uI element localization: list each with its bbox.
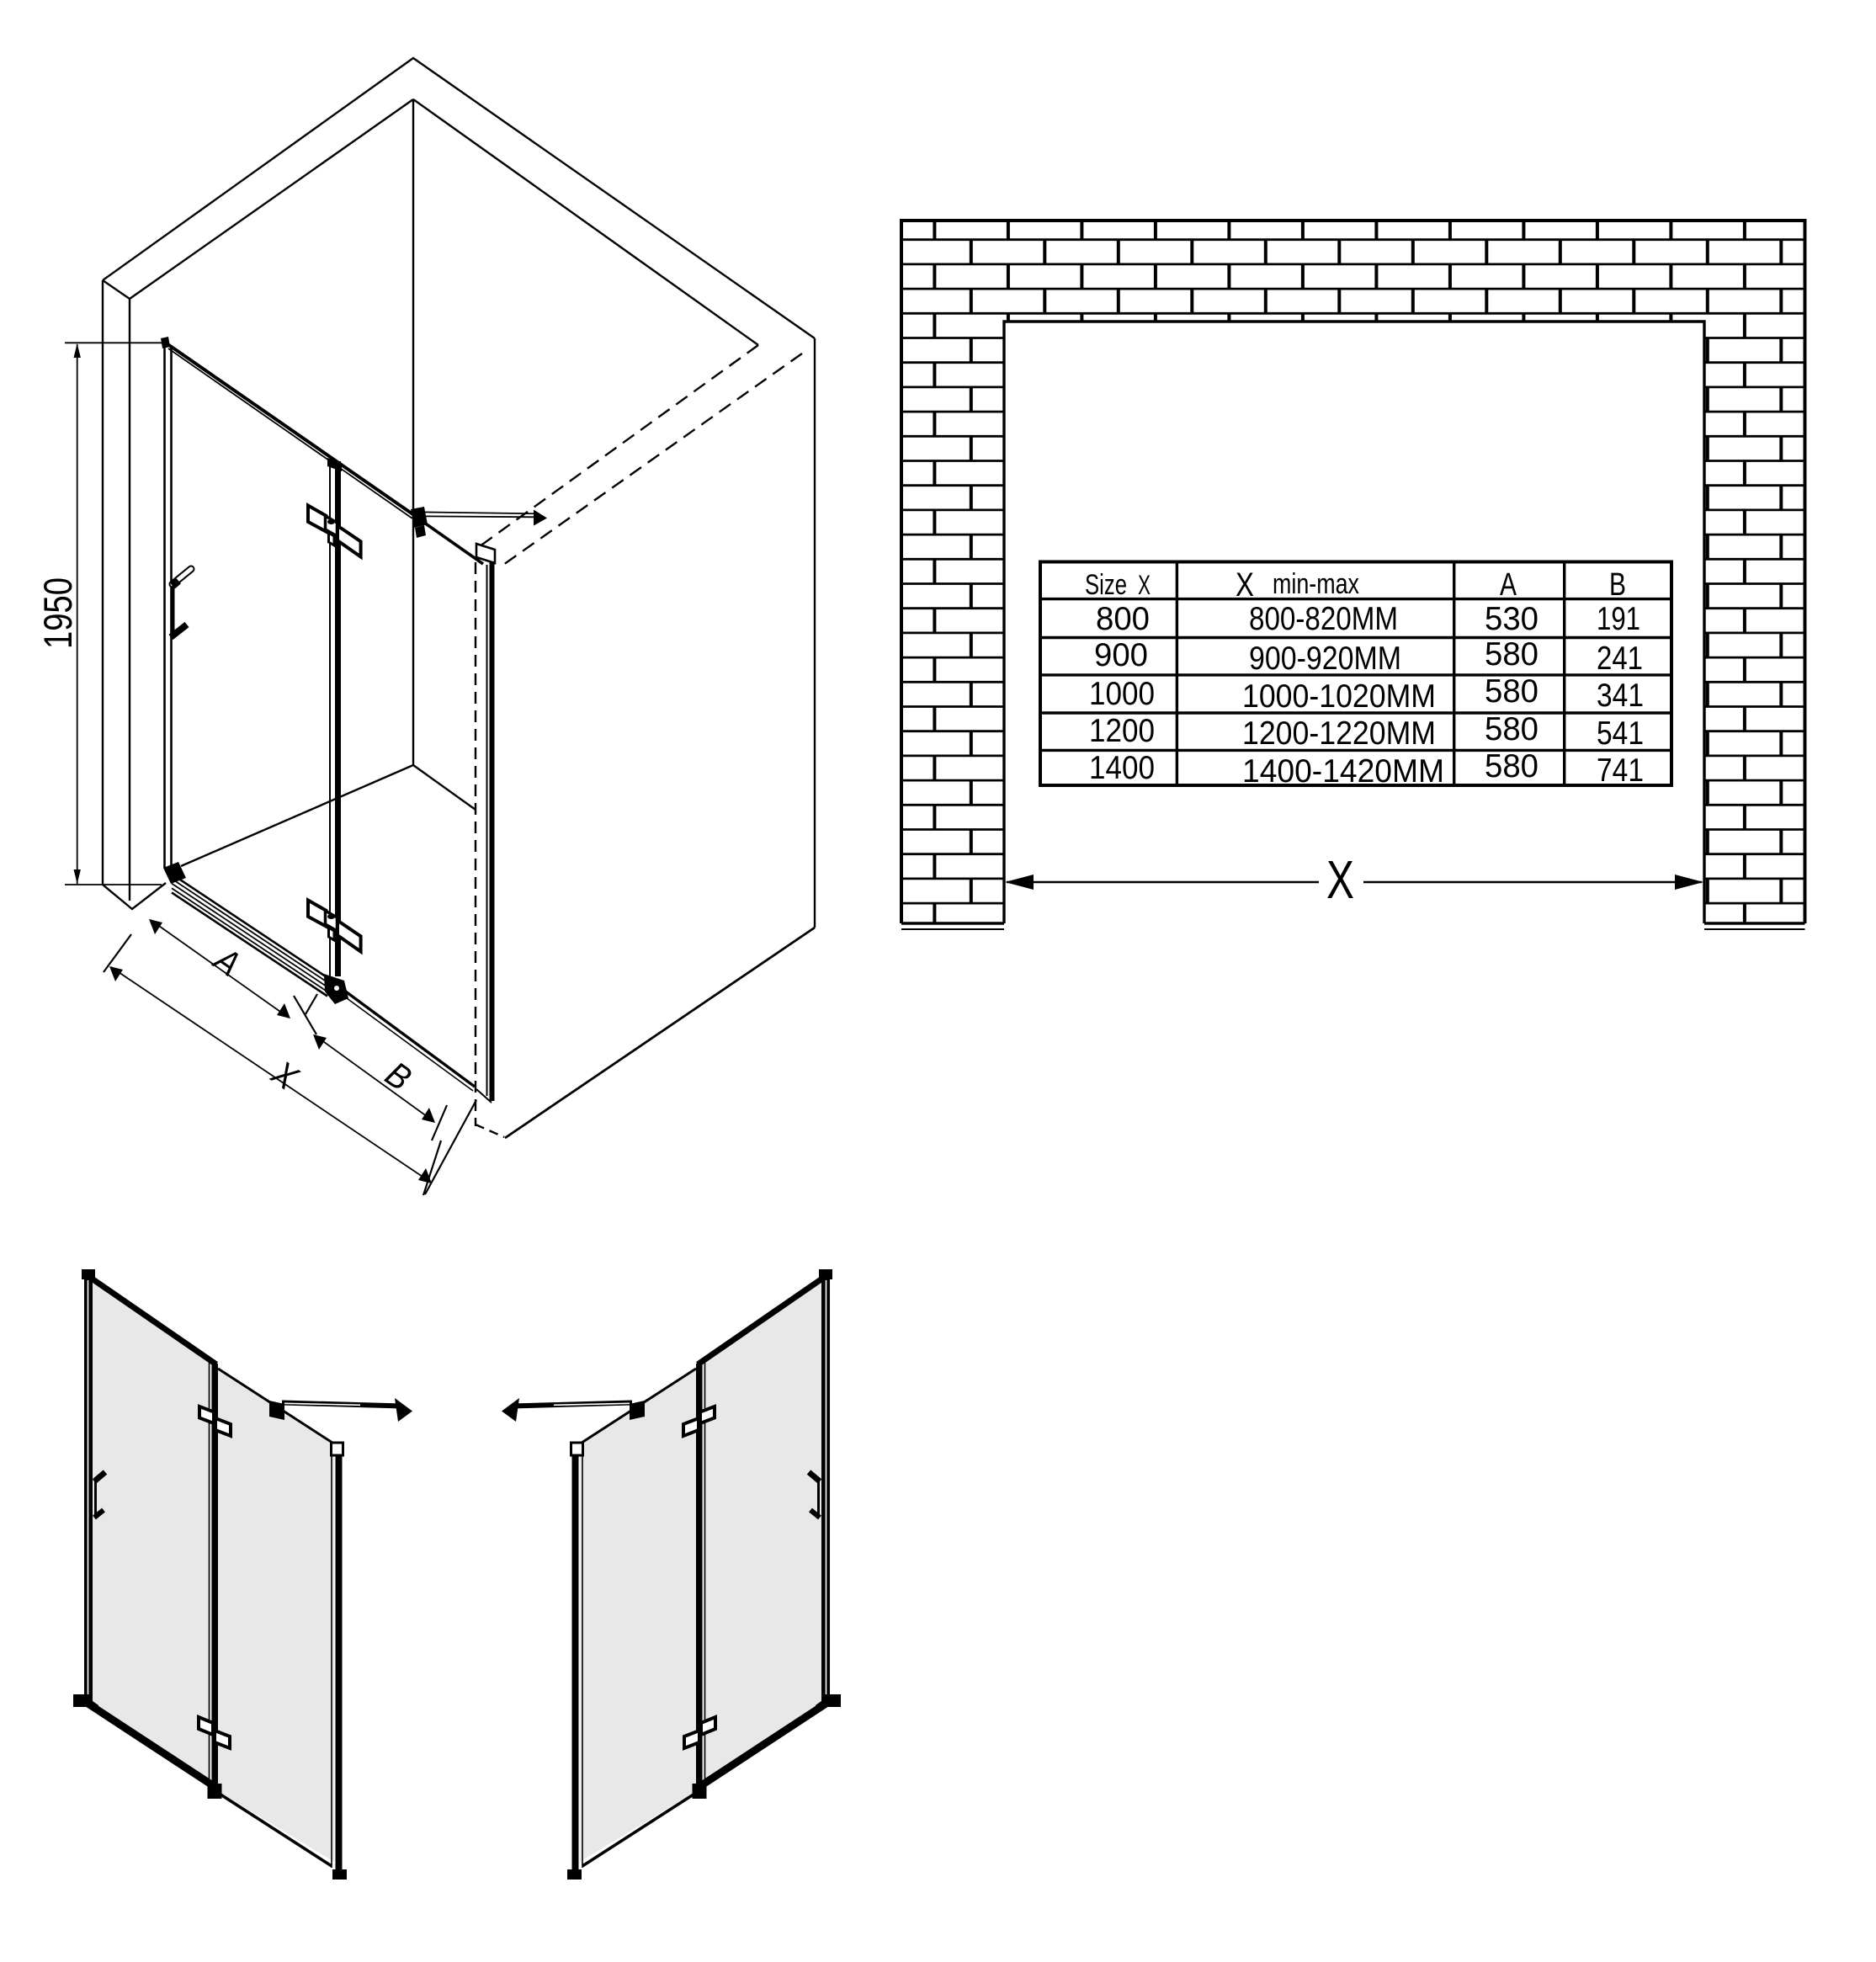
- svg-text:B: B: [1609, 567, 1626, 603]
- svg-text:1000: 1000: [1089, 676, 1155, 712]
- svg-text:1200-1220MM: 1200-1220MM: [1242, 715, 1436, 752]
- svg-text:580: 580: [1485, 673, 1539, 710]
- svg-text:900: 900: [1094, 637, 1148, 673]
- svg-text:580: 580: [1485, 636, 1539, 673]
- svg-text:530: 530: [1485, 601, 1539, 637]
- svg-text:A: A: [1500, 567, 1517, 603]
- svg-text:241: 241: [1597, 641, 1643, 677]
- svg-text:X: X: [1138, 570, 1151, 600]
- svg-text:741: 741: [1597, 752, 1644, 789]
- svg-text:min-max: min-max: [1273, 568, 1359, 600]
- svg-text:1400-1420MM: 1400-1420MM: [1242, 753, 1444, 790]
- svg-text:1950: 1950: [35, 577, 80, 649]
- svg-text:X: X: [1326, 849, 1354, 910]
- svg-text:Size: Size: [1085, 569, 1127, 601]
- svg-text:580: 580: [1485, 711, 1539, 747]
- svg-text:541: 541: [1597, 715, 1644, 752]
- svg-text:580: 580: [1485, 748, 1539, 784]
- svg-text:1400: 1400: [1089, 750, 1155, 786]
- svg-text:1000-1020MM: 1000-1020MM: [1242, 678, 1436, 715]
- svg-text:1200: 1200: [1089, 713, 1155, 749]
- svg-text:341: 341: [1597, 678, 1644, 714]
- svg-text:X: X: [1236, 566, 1254, 603]
- svg-text:800: 800: [1096, 601, 1150, 637]
- svg-text:191: 191: [1597, 601, 1640, 637]
- svg-text:900-920MM: 900-920MM: [1249, 641, 1401, 677]
- svg-text:800-820MM: 800-820MM: [1249, 601, 1398, 637]
